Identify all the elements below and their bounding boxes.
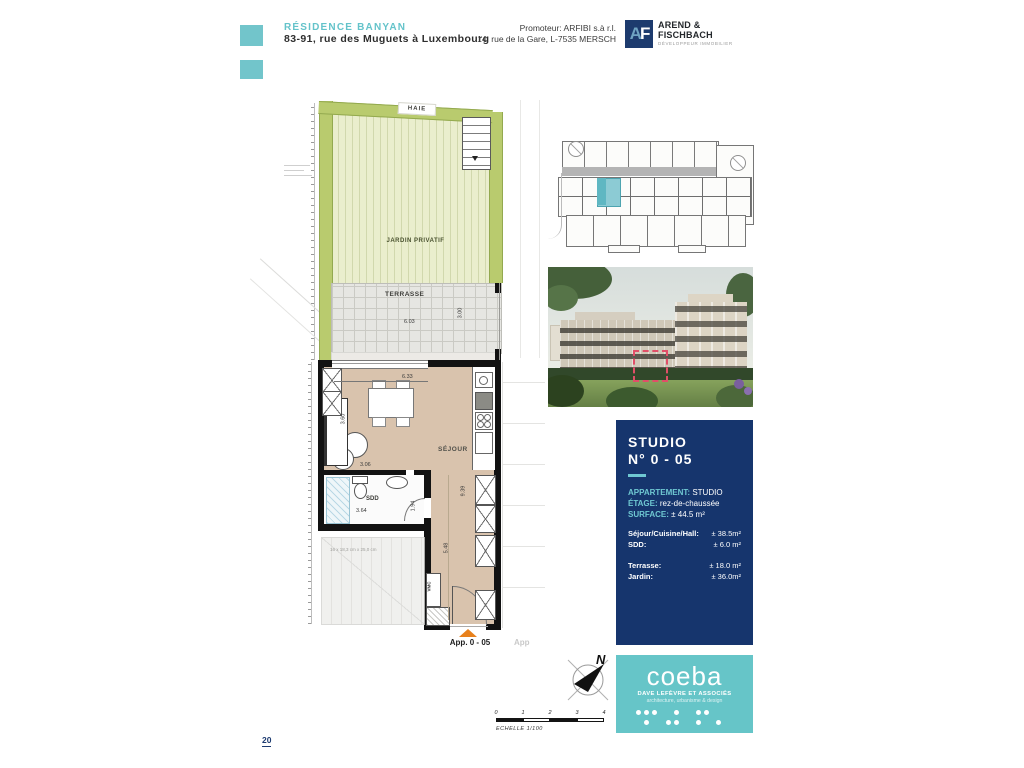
dim-sofa-width: 3.06 [360, 462, 371, 468]
hedge-right [489, 112, 503, 283]
hall-closet [475, 535, 496, 567]
scale-tick: 0 [494, 710, 497, 716]
dim-line-vertical [448, 475, 449, 620]
north-label: N [596, 652, 605, 667]
building-facade-right [675, 302, 747, 375]
dim-bathroom-depth: 1.94 [410, 501, 416, 512]
left-annotation-line [284, 175, 312, 176]
entrance-threshold [450, 626, 488, 627]
project-title: RÉSIDENCE BANYAN [284, 22, 406, 33]
terrace-window-line [332, 363, 428, 364]
dim-terrace-depth: 3.00 [457, 308, 463, 319]
outdoor-area-row: Terrasse: ± 18.0 m² [628, 560, 741, 571]
flower-accent [734, 379, 744, 389]
exterior-stair [462, 117, 491, 170]
key-plan-band [562, 167, 717, 176]
hob-burner [477, 414, 484, 421]
wall [428, 360, 501, 367]
entrance-marker-icon [459, 629, 477, 637]
hall-closet [475, 590, 496, 620]
dimension-ruler-left-upper [311, 103, 315, 360]
dim-terrace-width: 6.03 [404, 319, 415, 325]
shower [326, 477, 350, 524]
af-logo-letter-a: A [630, 24, 640, 44]
dim-living-depth: 3.60 [340, 414, 346, 425]
dim-corridor-depth: 9.39 [460, 486, 466, 497]
panel-title-line2: N° 0 - 05 [628, 451, 741, 468]
flower-accent [744, 387, 752, 395]
spec-apartment-value: STUDIO [692, 488, 722, 497]
washbasin [386, 476, 408, 489]
dim-bathroom-width: 3.64 [356, 508, 367, 514]
terrace-wall-stub [495, 349, 501, 360]
developer-name: AREND & FISCHBACH [658, 21, 713, 40]
adjacent-apartment-label: App [514, 638, 530, 647]
key-plan-low-block [566, 215, 746, 247]
spec-apartment-label: APPARTEMENT: [628, 488, 690, 497]
scale-bar: 0 1 2 3 4 ECHELLE 1/100 [494, 710, 612, 734]
developer-tagline: DÉVELOPPEUR IMMOBILIER [658, 41, 733, 46]
spec-surface: SURFACE: ± 44.5 m² [628, 509, 741, 520]
dim-line [334, 381, 428, 382]
adjacent-unit [502, 362, 545, 628]
room-area-row: Séjour/Cuisine/Hall: ± 38.5m² [628, 528, 741, 539]
key-plan-road [548, 173, 562, 239]
outdoor-garden-value: ± 36.0m² [711, 571, 741, 582]
terrace-label: TERRASSE [385, 291, 424, 298]
key-plan-mid-block [558, 177, 752, 217]
panel-title-line1: STUDIO [628, 434, 741, 451]
brand-square-bottom [240, 60, 263, 79]
terrace-wall-stub [495, 283, 501, 293]
promoter-line2: 14, rue de la Gare, L-7535 MERSCH [460, 34, 616, 45]
key-plan-circle [730, 155, 746, 171]
outdoor-terrace-value: ± 18.0 m² [709, 560, 741, 571]
key-plan-highlighted-unit-inner [597, 178, 606, 205]
corner-closet [426, 607, 450, 626]
spec-floor: ÉTAGE: rez-de-chaussée [628, 498, 741, 509]
bathroom-label: SDD [366, 496, 379, 502]
af-logo-letter-f: F [640, 24, 648, 44]
interior-wall [324, 470, 406, 475]
hall-closet [475, 505, 496, 533]
scale-bar-segments [496, 718, 604, 722]
apartment-label: App. 0 - 05 [438, 638, 502, 647]
spec-floor-value: rez-de-chaussée [660, 499, 720, 508]
unit-info-panel: STUDIO N° 0 - 05 APPARTEMENT: STUDIO ÉTA… [616, 420, 753, 645]
page-number: 20 [262, 735, 271, 747]
wall [318, 524, 430, 531]
closet [322, 391, 342, 416]
dining-table [368, 388, 414, 418]
hedge-label: HAIE [398, 102, 437, 116]
spec-surface-value: ± 44.5 m² [671, 510, 705, 519]
tree-foliage [548, 285, 578, 311]
key-plan-top-row [562, 141, 719, 169]
room-living-label: Séjour/Cuisine/Hall: [628, 528, 699, 539]
architect-tagline: architecture, urbanisme & design [616, 698, 753, 704]
promoter-line1: Promoteur: ARFIBI s.à r.l. [460, 23, 616, 34]
building-rendering [548, 267, 753, 407]
hall-closet [475, 475, 496, 505]
terrace-edge-line [499, 283, 500, 360]
vmc-label: VMC [427, 582, 432, 592]
af-logo: AF [625, 20, 653, 48]
kitchen-cabinet [475, 432, 493, 454]
room-living-value: ± 38.5m² [711, 528, 741, 539]
key-plan-stub [678, 245, 706, 253]
scale-tick: 2 [548, 710, 551, 716]
room-bath-value: ± 6.0 m² [714, 539, 741, 550]
wall [424, 470, 431, 498]
scale-label: ECHELLE 1/100 [496, 726, 543, 732]
left-annotation-line [284, 165, 310, 166]
dimension-ruler-left-lower [308, 362, 312, 624]
project-address: 83-91, rue des Muguets à Luxembourg [284, 33, 489, 45]
promoter-block: Promoteur: ARFIBI s.à r.l. 14, rue de la… [460, 23, 616, 44]
panel-accent-dash [628, 474, 646, 477]
architect-panel: coeba DAVE LEFÈVRE ET ASSOCIÉS architect… [616, 655, 753, 733]
outdoor-area-row: Jardin: ± 36.0m² [628, 571, 741, 582]
foreground-bush [606, 387, 658, 407]
kitchen-sink-bowl [479, 376, 488, 385]
stair-note: 16 x 18,3 cm x 25,0 cm [330, 547, 377, 552]
terrace-window [332, 360, 428, 369]
unit-highlight-box [633, 350, 668, 382]
stair-direction-arrow [472, 156, 478, 161]
north-arrow-icon [560, 652, 616, 708]
chair [396, 417, 410, 427]
scale-tick: 3 [575, 710, 578, 716]
key-plan [548, 133, 755, 252]
wall [486, 624, 501, 630]
outdoor-garden-label: Jardin: [628, 571, 653, 582]
architect-subtitle: DAVE LEFÈVRE ET ASSOCIÉS [616, 691, 753, 697]
spec-apartment: APPARTEMENT: STUDIO [628, 487, 741, 498]
spec-floor-label: ÉTAGE: [628, 499, 658, 508]
dim-living-width: 6.33 [402, 374, 413, 380]
kitchen-oven [475, 392, 493, 410]
brand-square-top [240, 25, 263, 46]
hob-burner [484, 421, 491, 428]
left-annotation-line [284, 170, 304, 171]
outdoor-terrace-label: Terrasse: [628, 560, 661, 571]
chair [372, 417, 386, 427]
key-plan-circle [568, 141, 584, 157]
architect-name: coeba [616, 663, 753, 689]
garden-label: JARDIN PRIVATIF [368, 238, 463, 244]
living-label: SÉJOUR [438, 446, 468, 453]
developer-name-line2: FISCHBACH [658, 31, 713, 41]
facade-windows [675, 302, 747, 375]
room-bath-label: SDD: [628, 539, 646, 550]
key-plan-stub [608, 245, 640, 253]
adjacent-context [502, 100, 544, 358]
spec-surface-label: SURFACE: [628, 510, 669, 519]
scale-tick: 4 [602, 710, 605, 716]
hob-burner [484, 414, 491, 421]
hob-burner [477, 421, 484, 428]
interior-wall [414, 470, 425, 475]
architect-braille-dots [616, 710, 753, 732]
scale-tick: 1 [521, 710, 524, 716]
room-area-row: SDD: ± 6.0 m² [628, 539, 741, 550]
brochure-page: RÉSIDENCE BANYAN 83-91, rue des Muguets … [0, 0, 1024, 768]
